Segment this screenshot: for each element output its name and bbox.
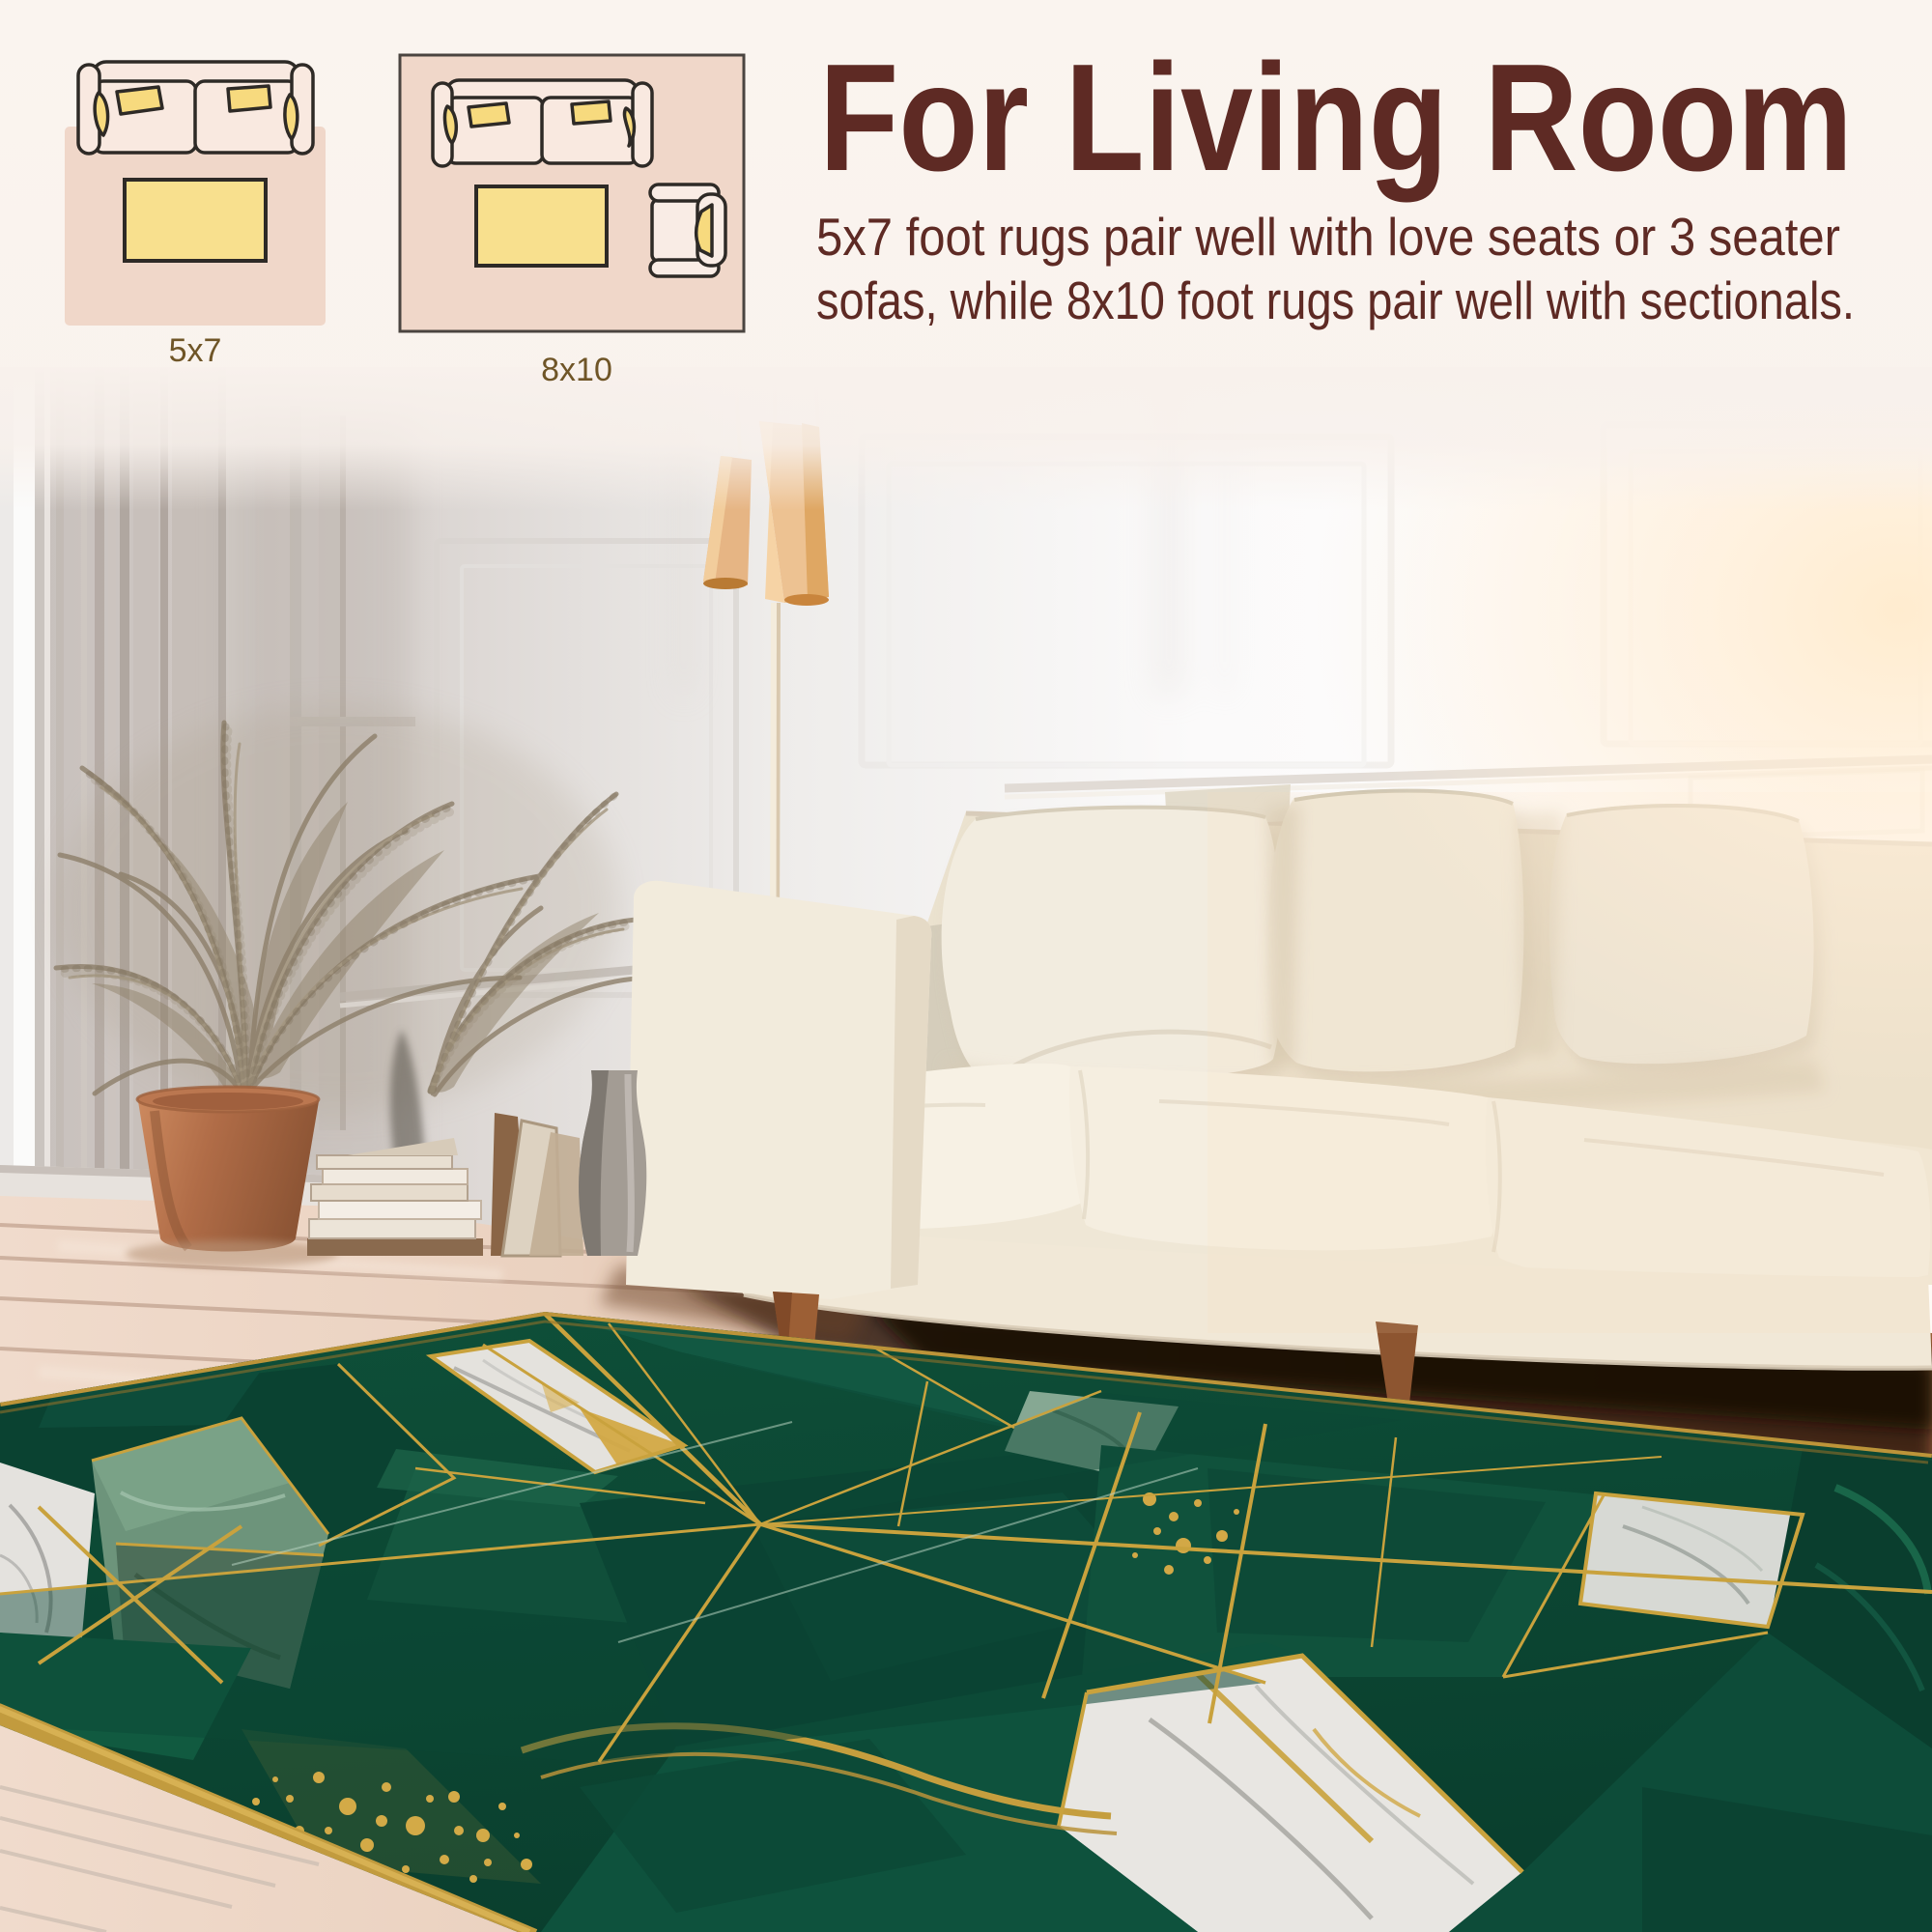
svg-text:8x10: 8x10 [541,352,612,388]
svg-text:For Living Room: For Living Room [819,33,1853,203]
svg-text:5x7: 5x7 [169,332,222,369]
svg-text:sofas, while 8x10 foot rugs pa: sofas, while 8x10 foot rugs pair well wi… [816,270,1855,330]
svg-text:5x7 foot rugs pair well with l: 5x7 foot rugs pair well with love seats … [816,207,1840,267]
